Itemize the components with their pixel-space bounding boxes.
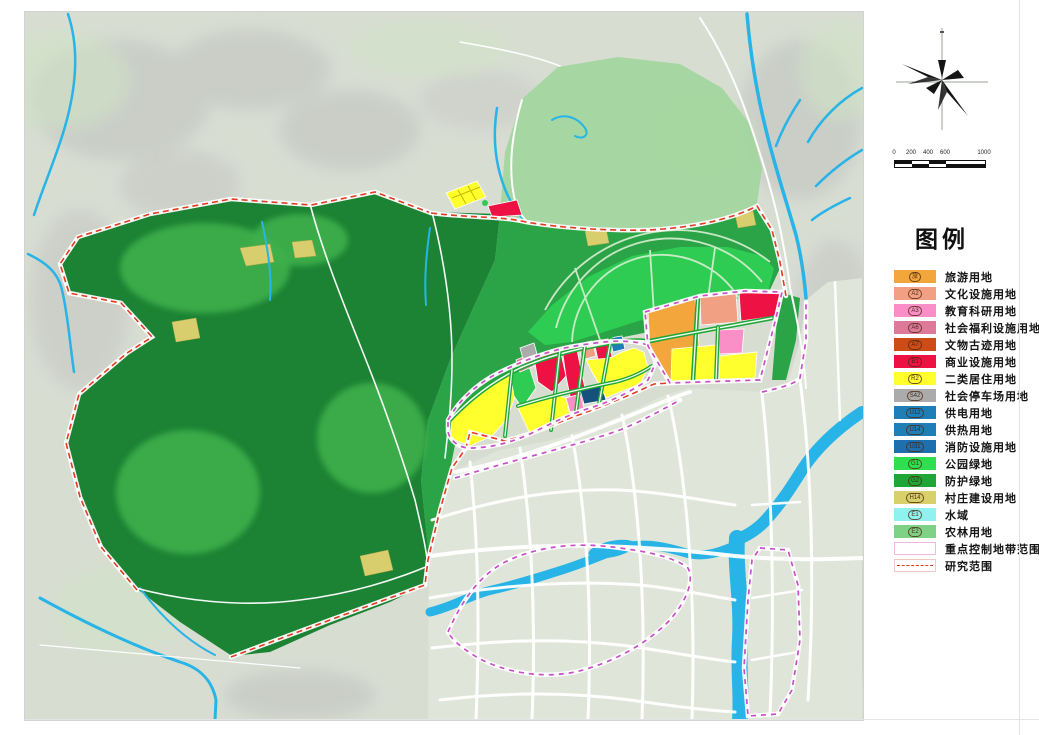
legend-label: 重点控制地带范围 [945,541,1039,557]
legend-swatch [894,542,936,555]
legend-code: A2 [908,289,921,299]
legend-label: 社会停车场用地 [945,388,1029,404]
legend-item: H14村庄建设用地 [894,489,1018,506]
legend-code: 旅 [909,272,921,282]
legend-code: U31 [906,442,923,452]
legend-label: 旅游用地 [945,269,993,285]
legend-item: R2二类居住用地 [894,370,1018,387]
legend-item: S42社会停车场用地 [894,387,1018,404]
legend-swatch: U31 [894,440,936,453]
scale-labels: 02004006001000 [894,150,990,158]
legend-item: B1商业设施用地 [894,353,1018,370]
legend-item: A2文化设施用地 [894,285,1018,302]
legend-label: 防护绿地 [945,473,993,489]
legend-label: 文物古迹用地 [945,337,1017,353]
legend-code: G1 [908,459,922,469]
legend-code: B1 [908,357,921,367]
sheet-frame-line [25,719,1039,720]
legend-code: H14 [906,493,923,503]
legend-item: U31消防设施用地 [894,438,1018,455]
legend-item: 重点控制地带范围 [894,540,1018,557]
plan-sheet: 02004006001000 图例 旅旅游用地A2文化设施用地A3教育科研用地A… [0,0,1039,735]
legend-swatch: G2 [894,474,936,487]
legend-label: 教育科研用地 [945,303,1017,319]
legend-swatch: E2 [894,525,936,538]
legend-item: E2农林用地 [894,523,1018,540]
legend-label: 社会福利设施用地 [945,320,1039,336]
legend-swatch: A7 [894,338,936,351]
legend-swatch: A6 [894,321,936,334]
legend-swatch [894,559,936,572]
legend-item: 旅旅游用地 [894,268,1018,285]
scale-bar: 02004006001000 [894,150,990,168]
legend-code: A7 [908,340,921,350]
legend-title: 图例 [866,220,1018,254]
legend-code: U14 [906,425,923,435]
legend-swatch: H14 [894,491,936,504]
legend-swatch: 旅 [894,270,936,283]
legend-swatch: U12 [894,406,936,419]
legend-item: E1水域 [894,506,1018,523]
legend-swatch: E1 [894,508,936,521]
legend-item: A3教育科研用地 [894,302,1018,319]
legend-code: U12 [906,408,923,418]
legend-label: 文化设施用地 [945,286,1017,302]
legend-swatch: S42 [894,389,936,402]
legend-code: A3 [908,306,921,316]
legend-label: 二类居住用地 [945,371,1017,387]
scale-label: 400 [923,150,933,156]
scale-label: 0 [892,150,895,156]
legend-swatch: U14 [894,423,936,436]
legend-item: U12供电用地 [894,404,1018,421]
scale-label: 1000 [977,150,990,156]
legend-swatch: G1 [894,457,936,470]
scale-label: 600 [940,150,950,156]
legend-label: 供热用地 [945,422,993,438]
legend-code: S42 [907,391,924,401]
legend-label: 研究范围 [945,558,993,574]
legend-item: G2防护绿地 [894,472,1018,489]
legend-label: 消防设施用地 [945,439,1017,455]
land-use-map[interactable] [25,12,863,720]
legend-code: E1 [908,510,921,520]
legend-label: 公园绿地 [945,456,993,472]
legend-items: 旅旅游用地A2文化设施用地A3教育科研用地A6社会福利设施用地A7文物古迹用地B… [866,268,1018,574]
legend-code: E2 [908,527,921,537]
legend-item: U14供热用地 [894,421,1018,438]
legend-label: 水域 [945,507,969,523]
legend-item: G1公园绿地 [894,455,1018,472]
scale-label: 200 [906,150,916,156]
legend-code: A6 [908,323,921,333]
legend-code: G2 [908,476,922,486]
north-arrow-icon [886,22,998,140]
legend-swatch: B1 [894,355,936,368]
legend-item: A6社会福利设施用地 [894,319,1018,336]
legend-swatch: A2 [894,287,936,300]
legend-item: 研究范围 [894,557,1018,574]
legend-code: R2 [908,374,922,384]
scale-bar-blocks [894,160,986,168]
legend-label: 商业设施用地 [945,354,1017,370]
legend-item: A7文物古迹用地 [894,336,1018,353]
legend-label: 农林用地 [945,524,993,540]
legend-swatch: R2 [894,372,936,385]
legend-swatch: A3 [894,304,936,317]
legend-label: 供电用地 [945,405,993,421]
sheet-frame-line [1019,0,1020,735]
legend-panel: 02004006001000 图例 旅旅游用地A2文化设施用地A3教育科研用地A… [866,14,1018,574]
legend-label: 村庄建设用地 [945,490,1017,506]
